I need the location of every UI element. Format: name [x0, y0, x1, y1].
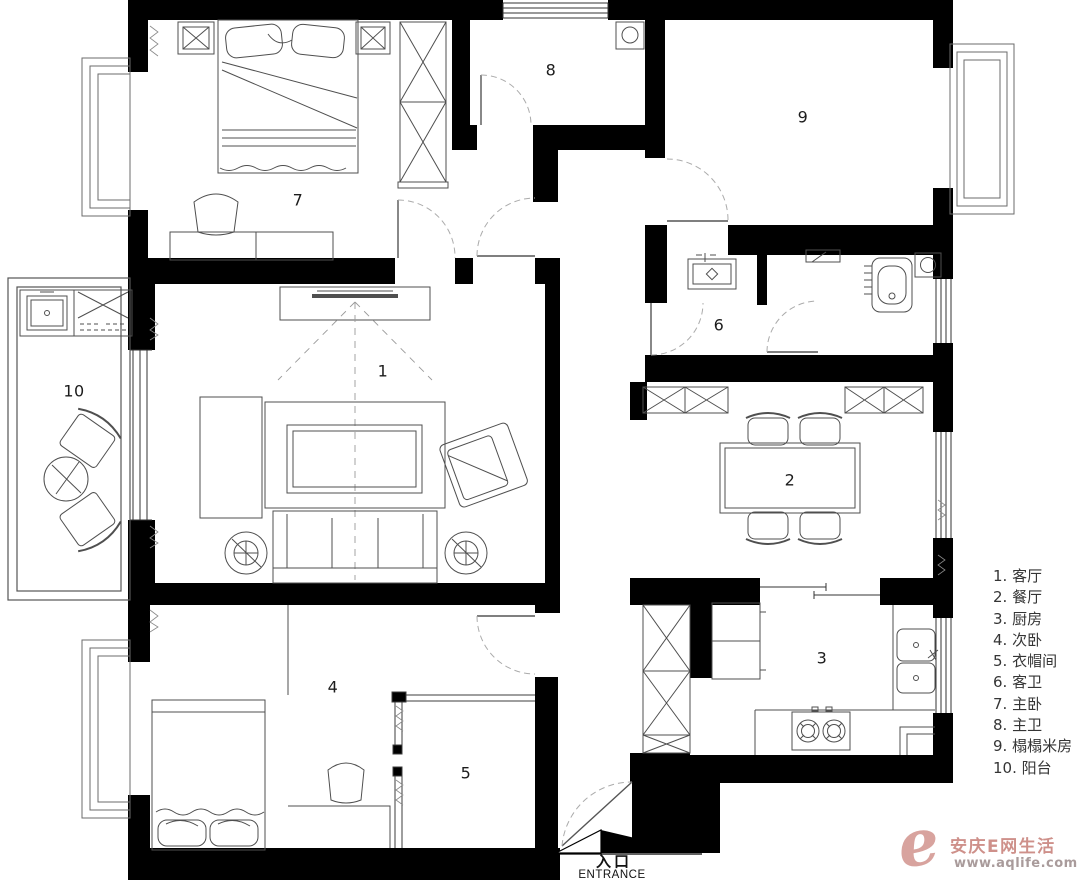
rug: [265, 402, 445, 508]
room-label-master-bed: 7: [293, 191, 304, 210]
watermark-brand: 安庆E网生活: [950, 832, 1056, 857]
furniture-living-room: [200, 287, 529, 583]
furniture-master-bedroom: [170, 20, 448, 260]
bathtub: [864, 258, 912, 312]
legend-item: 10. 阳台: [993, 758, 1080, 779]
balcony-outline: [8, 278, 130, 600]
balcony-chair: [55, 404, 124, 472]
wardrobe: [398, 22, 448, 188]
furniture-balcony: [20, 290, 132, 556]
legend-item: 4. 次卧: [993, 630, 1080, 651]
corner-detail: [900, 727, 935, 755]
sofa: [273, 511, 437, 583]
leg极end-item: 8. 主卫: [993, 715, 1080, 736]
walls: [128, 0, 953, 880]
tv-sightlines: [278, 302, 432, 580]
watermark-url: www.aqlife.com: [954, 856, 1078, 871]
room-label-kitchen: 3: [817, 649, 828, 668]
room-label-tatami: 9: [798, 108, 809, 127]
shoe-cabinet: [643, 605, 690, 753]
furniture-kitchen: [712, 603, 938, 755]
dresser: [170, 232, 333, 260]
side-cabinet: [200, 397, 262, 518]
legend-item: 7. 主卧: [993, 694, 1080, 715]
bathroom-sink: [688, 253, 736, 289]
room-legend: 1. 客厅 2. 餐厅 3. 厨房 4. 次卧 5. 衣帽间 6. 客卫 7. …: [993, 566, 1080, 779]
kitchen-sink: [897, 629, 938, 693]
room-label-master-bath: 8: [546, 61, 557, 80]
legend-item: 9. 榻榻米房: [993, 736, 1080, 757]
legend-item: 1. 客厅: [993, 566, 1080, 587]
coffee-table: [287, 425, 422, 493]
desk: [288, 806, 390, 848]
furniture-hall: [643, 605, 690, 753]
room-label-cloakroom: 5: [461, 764, 472, 783]
wall-cabinets: [712, 603, 766, 679]
site-watermark: e 安庆E网生活 www.aqlife.com: [898, 820, 1080, 882]
stove: [792, 707, 850, 750]
balcony-chair: [55, 489, 124, 557]
legend-item: 6. 客卫: [993, 672, 1080, 693]
legend-item: 5. 衣帽间: [993, 651, 1080, 672]
room-label-bedroom-2: 4: [328, 678, 339, 697]
room-label-balcony: 10: [63, 382, 84, 401]
furniture-bathroom: [688, 250, 941, 312]
legend-item: 2. 餐厅: [993, 587, 1080, 608]
floor-plan-drawing: [0, 0, 1080, 885]
pillow: [158, 820, 258, 846]
room-label-dining: 2: [785, 471, 796, 490]
furniture-master-bath: [616, 22, 644, 49]
legend-item: 3. 厨房: [993, 609, 1080, 630]
entrance-label-en: ENTRANCE: [578, 869, 645, 881]
furniture-dining: [643, 387, 923, 544]
stool: [194, 194, 238, 235]
room-label-guest-bath: 6: [714, 316, 725, 335]
stool: [328, 763, 364, 803]
floorplan-canvas: 1 2 3 4 5 6 7 8 9 10 1. 客厅 2. 餐厅 3. 厨房 4…: [0, 0, 1080, 885]
wardrobe-cabinet: [643, 387, 923, 413]
room-label-living: 1: [378, 362, 389, 381]
laundry-cabinet: [20, 290, 132, 336]
armchair: [439, 422, 529, 509]
furniture-bedroom-2: [152, 605, 535, 850]
pillow: [225, 23, 346, 59]
